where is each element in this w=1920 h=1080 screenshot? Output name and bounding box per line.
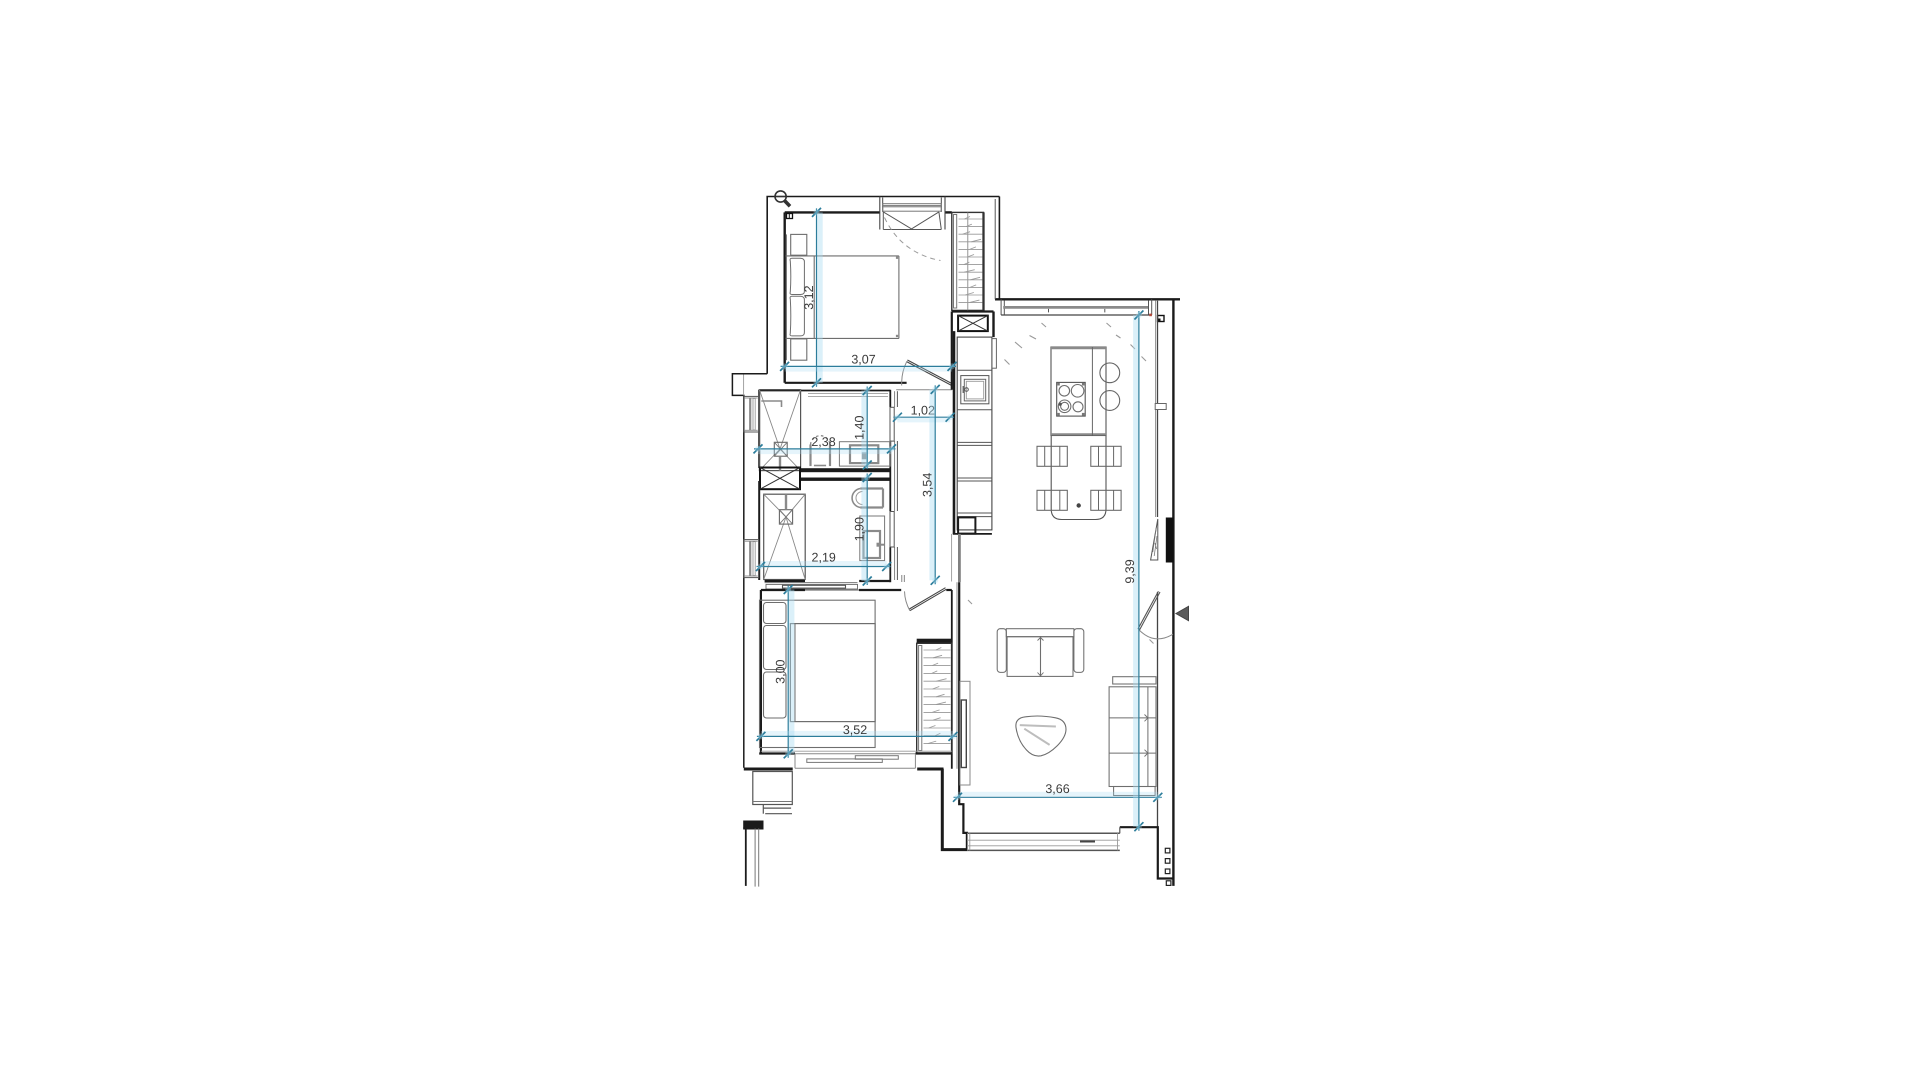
svg-text:3,07: 3,07	[851, 352, 875, 366]
svg-text:9,39: 9,39	[1123, 559, 1137, 583]
svg-text:1,40: 1,40	[853, 416, 867, 440]
svg-text:3,52: 3,52	[843, 723, 867, 737]
svg-text:3,00: 3,00	[774, 659, 788, 683]
svg-text:2,38: 2,38	[811, 435, 835, 449]
svg-text:3,66: 3,66	[1045, 782, 1069, 796]
svg-text:2,19: 2,19	[812, 551, 836, 565]
svg-text:3,54: 3,54	[921, 473, 935, 497]
svg-text:3,12: 3,12	[802, 285, 816, 309]
svg-text:1,90: 1,90	[853, 517, 867, 541]
